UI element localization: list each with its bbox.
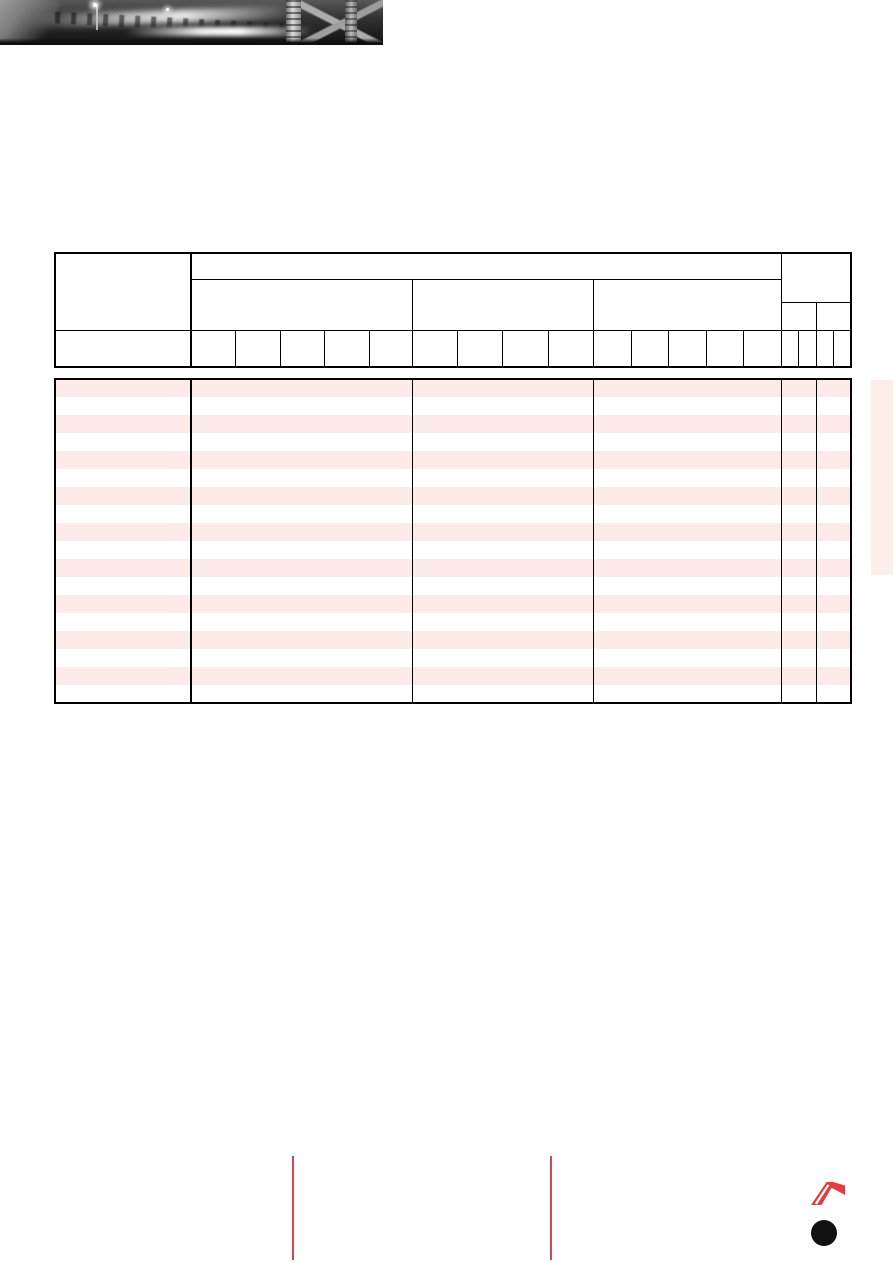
body-cell xyxy=(593,379,781,397)
body-cell xyxy=(55,451,191,469)
body-cell xyxy=(782,379,817,397)
body-cell xyxy=(782,667,817,685)
table-row xyxy=(55,505,851,523)
body-cell xyxy=(55,559,191,577)
body-cell xyxy=(413,667,593,685)
table-row xyxy=(55,685,851,703)
header-right-subcol xyxy=(782,330,799,367)
body-cell xyxy=(817,505,851,523)
body-cell xyxy=(817,379,851,397)
body-cell xyxy=(782,433,817,451)
body-cell xyxy=(55,577,191,595)
body-cell xyxy=(55,523,191,541)
table-row xyxy=(55,631,851,649)
body-cell xyxy=(55,487,191,505)
body-cell xyxy=(55,631,191,649)
body-cell xyxy=(593,451,781,469)
body-cell xyxy=(191,433,413,451)
body-rows xyxy=(55,379,851,703)
header-right-mid-cell xyxy=(817,302,851,330)
body-cell xyxy=(191,469,413,487)
body-cell xyxy=(413,685,593,703)
body-cell xyxy=(593,685,781,703)
header-subcol xyxy=(191,330,235,367)
footer-rule-right xyxy=(550,1156,552,1260)
table-row xyxy=(55,667,851,685)
body-cell xyxy=(55,649,191,667)
body-cell xyxy=(413,397,593,415)
footer-rule-left xyxy=(292,1156,294,1260)
photo-lamp-pole xyxy=(96,4,98,30)
body-cell xyxy=(413,451,593,469)
body-cell xyxy=(55,541,191,559)
body-cell xyxy=(782,415,817,433)
body-cell xyxy=(55,433,191,451)
body-cell xyxy=(413,415,593,433)
body-cell xyxy=(593,577,781,595)
body-cell xyxy=(55,469,191,487)
body-cell xyxy=(782,523,817,541)
body-cell xyxy=(191,577,413,595)
body-cell xyxy=(413,631,593,649)
header-subcol xyxy=(503,330,548,367)
body-cell xyxy=(191,613,413,631)
header-subcol xyxy=(325,330,370,367)
side-margin-band xyxy=(871,380,893,575)
body-cell xyxy=(817,559,851,577)
header-left-top-cell xyxy=(55,253,191,330)
body-cell xyxy=(817,685,851,703)
body-cell xyxy=(593,541,781,559)
body-cell xyxy=(817,415,851,433)
body-cell xyxy=(817,541,851,559)
body-cell xyxy=(817,595,851,613)
body-cell xyxy=(782,487,817,505)
body-cell xyxy=(413,523,593,541)
body-cell xyxy=(413,379,593,397)
header-subcol xyxy=(631,330,668,367)
body-cell xyxy=(593,523,781,541)
body-cell xyxy=(817,577,851,595)
body-cell xyxy=(782,613,817,631)
body-cell xyxy=(817,433,851,451)
body-cell xyxy=(191,397,413,415)
body-cell xyxy=(817,649,851,667)
body-cell xyxy=(191,415,413,433)
body-cell xyxy=(817,631,851,649)
body-cell xyxy=(191,487,413,505)
header-right-subcol xyxy=(834,330,851,367)
body-cell xyxy=(593,649,781,667)
table-row xyxy=(55,649,851,667)
body-cell xyxy=(55,613,191,631)
body-cell xyxy=(191,559,413,577)
table-row xyxy=(55,433,851,451)
table-row xyxy=(55,469,851,487)
body-cell xyxy=(55,595,191,613)
header-section-2 xyxy=(413,279,593,330)
header-top-span-cell xyxy=(191,253,781,279)
header-left-bottom-cell xyxy=(55,330,191,367)
body-cell xyxy=(191,685,413,703)
body-table xyxy=(54,378,852,704)
body-cell xyxy=(413,487,593,505)
table-row xyxy=(55,397,851,415)
header-section-3 xyxy=(593,279,782,330)
header-subcol xyxy=(458,330,503,367)
body-cell xyxy=(55,415,191,433)
body-cell xyxy=(55,397,191,415)
body-cell xyxy=(593,613,781,631)
body-cell xyxy=(413,595,593,613)
body-cell xyxy=(413,433,593,451)
header-subcol xyxy=(668,330,706,367)
body-cell xyxy=(817,523,851,541)
table-row xyxy=(55,613,851,631)
body-cell xyxy=(593,667,781,685)
body-cell xyxy=(55,379,191,397)
body-cell xyxy=(782,469,817,487)
table-row xyxy=(55,379,851,397)
body-cell xyxy=(191,631,413,649)
header-subcol xyxy=(280,330,324,367)
header-right-group-cell xyxy=(782,253,851,302)
body-cell xyxy=(817,397,851,415)
body-cell xyxy=(817,667,851,685)
body-cell xyxy=(593,559,781,577)
autostrade-a-logo-icon xyxy=(811,1181,845,1205)
table-row xyxy=(55,523,851,541)
header-subcol xyxy=(235,330,280,367)
body-cell xyxy=(593,487,781,505)
body-cell xyxy=(782,397,817,415)
body-cell xyxy=(782,577,817,595)
photo-road-shadow xyxy=(0,38,383,45)
body-cell xyxy=(817,451,851,469)
body-cell xyxy=(413,559,593,577)
body-cell xyxy=(413,505,593,523)
header-subcol xyxy=(743,330,781,367)
table-row xyxy=(55,415,851,433)
body-cell xyxy=(191,649,413,667)
black-dot-icon xyxy=(811,1220,837,1246)
body-cell xyxy=(413,613,593,631)
table-row xyxy=(55,559,851,577)
table-row xyxy=(55,541,851,559)
body-cell xyxy=(817,487,851,505)
table-header xyxy=(54,252,852,368)
body-cell xyxy=(413,541,593,559)
body-cell xyxy=(593,505,781,523)
table-row xyxy=(55,577,851,595)
body-cell xyxy=(782,649,817,667)
photo-street-lamp xyxy=(93,3,97,7)
body-cell xyxy=(782,541,817,559)
table-row xyxy=(55,487,851,505)
table-row xyxy=(55,595,851,613)
body-cell xyxy=(191,541,413,559)
body-cell xyxy=(413,469,593,487)
body-cell xyxy=(782,685,817,703)
body-cell xyxy=(413,577,593,595)
body-cell xyxy=(191,595,413,613)
header-subcol xyxy=(370,330,413,367)
body-cell xyxy=(191,667,413,685)
photo-street-lamp xyxy=(166,8,169,11)
body-cell xyxy=(817,613,851,631)
header-subcol xyxy=(548,330,593,367)
header-right-subcol xyxy=(817,330,834,367)
header-section-1 xyxy=(191,279,412,330)
header-photo xyxy=(0,0,383,45)
body-cell xyxy=(55,685,191,703)
body-cell xyxy=(191,505,413,523)
body-cell xyxy=(782,451,817,469)
body-cell xyxy=(782,631,817,649)
body-cell xyxy=(593,433,781,451)
body-cell xyxy=(191,523,413,541)
body-cell xyxy=(191,451,413,469)
body-cell xyxy=(782,559,817,577)
body-cell xyxy=(55,667,191,685)
body-cell xyxy=(55,505,191,523)
body-cell xyxy=(593,469,781,487)
body-cell xyxy=(782,595,817,613)
body-cell xyxy=(817,469,851,487)
document-page xyxy=(0,0,893,1262)
body-cell xyxy=(593,631,781,649)
table-row xyxy=(55,451,851,469)
header-right-subcol xyxy=(799,330,817,367)
header-subcol xyxy=(413,330,458,367)
body-cell xyxy=(593,595,781,613)
body-cell xyxy=(782,505,817,523)
body-cell xyxy=(413,649,593,667)
header-subcol xyxy=(706,330,743,367)
body-cell xyxy=(191,379,413,397)
header-right-mid-cell xyxy=(782,302,817,330)
body-cell xyxy=(593,397,781,415)
body-cell xyxy=(593,415,781,433)
header-subcol xyxy=(593,330,631,367)
